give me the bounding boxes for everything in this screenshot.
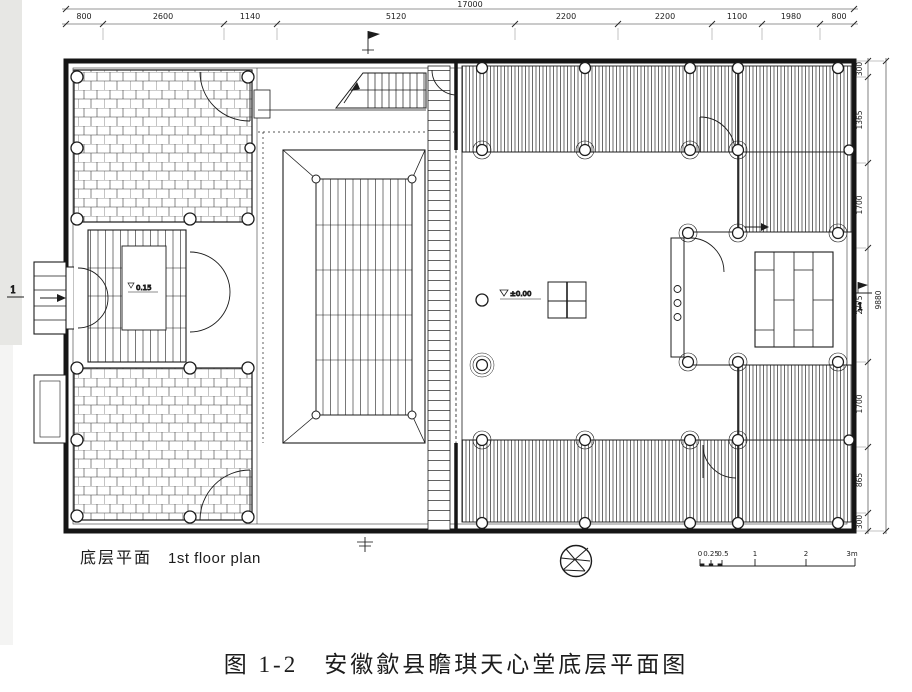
dim-label: 5120: [386, 12, 406, 21]
section-marker-left: 1: [10, 285, 16, 296]
dim-label: 300: [855, 62, 864, 77]
southwest-brick-room: [74, 368, 252, 520]
dim-label: 800: [76, 12, 91, 21]
dim-overall-right: 9880: [874, 290, 883, 309]
courtyard-level-text: ±0.00: [510, 290, 531, 298]
figure-caption: 图 1-2 安徽歙县瞻琪天心堂底层平面图: [224, 652, 688, 677]
northeast-room-floor: [738, 152, 852, 232]
dim-label: 2200: [556, 12, 576, 21]
section-marker-right: 1: [857, 302, 863, 313]
west-room-level-text: 0.15: [136, 284, 152, 292]
west-side-platform: [34, 375, 66, 443]
scale-label: 2: [804, 550, 808, 558]
dim-label: 1980: [781, 12, 801, 21]
dim-label: 1365: [855, 110, 864, 129]
floor-plan-drawing: ±0.00 0.15 17000 800 2600 1140 5120 2200…: [0, 0, 912, 692]
dim-label: 1700: [855, 195, 864, 214]
dim-label: 2200: [655, 12, 675, 21]
northwest-brick-room: [74, 70, 252, 222]
dim-label: 300: [855, 515, 864, 530]
scale-label: 0.5: [717, 550, 728, 558]
dim-label: 1700: [855, 394, 864, 413]
scale-label: 0: [698, 550, 702, 558]
scanned-floor-plan-page: ±0.00 0.15 17000 800 2600 1140 5120 2200…: [0, 0, 912, 692]
south-veranda-floor: [462, 440, 852, 522]
scale-label: 1: [753, 550, 757, 558]
dim-label: 865: [855, 473, 864, 488]
screen-panel: [671, 238, 684, 357]
north-veranda-floor: [462, 66, 852, 152]
dim-label: 800: [831, 12, 846, 21]
plan-label-zh: 底层平面: [80, 549, 152, 567]
scale-label: 3m: [846, 550, 857, 558]
dim-label: 1100: [727, 12, 747, 21]
plan-label-en: 1st floor plan: [168, 550, 261, 567]
central-walkway: [428, 66, 450, 530]
hall-plank-floor: [316, 179, 412, 415]
dim-overall-top: 17000: [457, 0, 482, 9]
southeast-room-floor: [738, 365, 852, 440]
dim-label: 1140: [240, 12, 260, 21]
dim-label: 2600: [153, 12, 173, 21]
